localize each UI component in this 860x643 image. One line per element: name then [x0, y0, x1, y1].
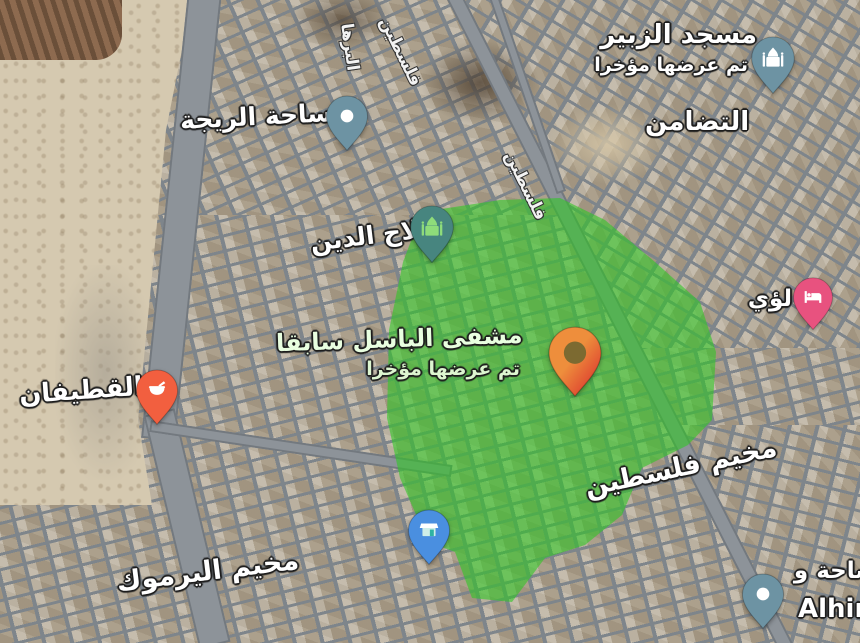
map-pin-mosque[interactable]: [750, 36, 796, 95]
pharmacy-icon: [147, 380, 168, 401]
marker-label[interactable]: مسجد الزبير: [600, 20, 757, 50]
map-pin-pharmacy[interactable]: [135, 369, 179, 426]
map-pin-plaza[interactable]: [325, 95, 369, 152]
farm-field: [0, 0, 122, 60]
map-canvas[interactable]: فلسطين فلسطين البرها التضامن مخيم فلسطين…: [0, 0, 860, 643]
marker-sublabel: تم عرضها مؤخرا: [366, 358, 520, 380]
area-label[interactable]: التضامن: [645, 107, 749, 137]
mosque-icon: [762, 47, 785, 68]
marker-label[interactable]: لؤي: [748, 286, 792, 312]
marker-sublabel[interactable]: Alhin: [798, 594, 860, 624]
map-pin-selected[interactable]: [547, 326, 603, 398]
map-pin-shop[interactable]: [407, 509, 451, 566]
plaza-dot-icon: [754, 585, 773, 604]
mosque-icon: [421, 216, 444, 237]
map-pin-hotel[interactable]: [792, 277, 834, 331]
hotel-bed-icon: [803, 287, 823, 307]
map-pin-mosque[interactable]: [409, 205, 455, 264]
storefront-icon: [419, 520, 440, 541]
map-pin-plaza[interactable]: [741, 573, 785, 630]
plaza-dot-icon: [338, 107, 357, 126]
selected-place-icon: [564, 342, 586, 364]
marker-sublabel: تم عرضها مؤخرا: [594, 54, 748, 76]
marker-label[interactable]: ساحة و: [794, 558, 860, 584]
